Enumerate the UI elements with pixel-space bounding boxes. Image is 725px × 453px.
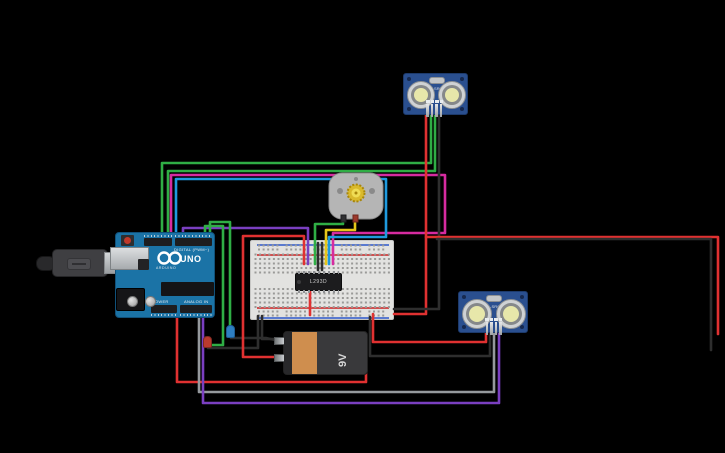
power-header[interactable] [151, 305, 177, 313]
digital-header-right[interactable] [175, 238, 212, 246]
reset-button[interactable] [121, 235, 134, 246]
pin-labels-top-right [175, 235, 212, 237]
led-red[interactable] [203, 336, 212, 348]
capacitor-2 [145, 296, 156, 307]
wire-red-sensor1-vcc[interactable] [394, 112, 426, 314]
digital-header-left[interactable] [144, 238, 172, 246]
battery-cap [284, 332, 292, 374]
sensor-pin-vcc[interactable] [486, 322, 489, 335]
motor-screw-right [369, 188, 375, 194]
uno-model-label: UNO [180, 254, 202, 264]
ic-label: L293D [296, 279, 341, 285]
arduino-brand-label: ARDUINO [156, 266, 176, 270]
reset-button-cap [124, 237, 131, 244]
motor-screw-top [354, 177, 358, 181]
usb-cable-plug[interactable] [52, 249, 108, 277]
battery-9v[interactable]: 9V [283, 331, 368, 375]
arduino-uno-board[interactable]: DIGITAL (PWM~) POWER ANALOG IN UNO ARDUI… [115, 232, 215, 318]
ultrasonic-sensor-bottom[interactable]: HC-SR04 [458, 291, 528, 333]
battery-label: 9V [337, 337, 349, 367]
sensor-pin-gnd[interactable] [499, 322, 502, 335]
battery-orange-band [292, 332, 317, 374]
motor-screw-left [337, 188, 343, 194]
sensor-pin-gnd[interactable] [440, 104, 443, 117]
led-blue[interactable] [226, 325, 235, 338]
ultrasonic-sensor-top[interactable]: HC-SR04 [403, 73, 468, 115]
capacitor-1 [127, 296, 138, 307]
circuit-canvas: L293D DIGITAL (PWM~) POWER ANALOG IN UNO… [0, 0, 725, 453]
crystal-oscillator [486, 295, 502, 302]
ic-legs-bottom [298, 290, 339, 293]
analog-label: ANALOG IN [184, 299, 208, 304]
analog-header[interactable] [180, 305, 212, 313]
usb-logo-icon [67, 258, 91, 270]
wires-layer [0, 0, 725, 453]
sensor-pin-trig[interactable] [490, 322, 493, 335]
voltage-regulator [138, 259, 149, 270]
pin-labels-bottom-right [180, 314, 212, 316]
pin-labels-top-left [144, 235, 172, 237]
dc-motor[interactable] [325, 170, 387, 224]
sensor-pin-trig[interactable] [431, 104, 434, 117]
pin-labels-bottom-left [151, 314, 177, 316]
transducer-right [438, 81, 466, 109]
sensor-pin-echo[interactable] [495, 322, 498, 335]
ic-legs-top [298, 271, 339, 274]
sensor-pin-echo[interactable] [435, 104, 438, 117]
motor-terminal-negative[interactable] [341, 215, 346, 222]
atmega-chip [161, 282, 214, 296]
motor-terminal-positive[interactable] [353, 215, 358, 222]
sensor-pin-vcc[interactable] [426, 104, 429, 117]
wire-black-battery-breadboard[interactable] [262, 316, 277, 339]
motor-driver-ic[interactable]: L293D [295, 273, 342, 291]
